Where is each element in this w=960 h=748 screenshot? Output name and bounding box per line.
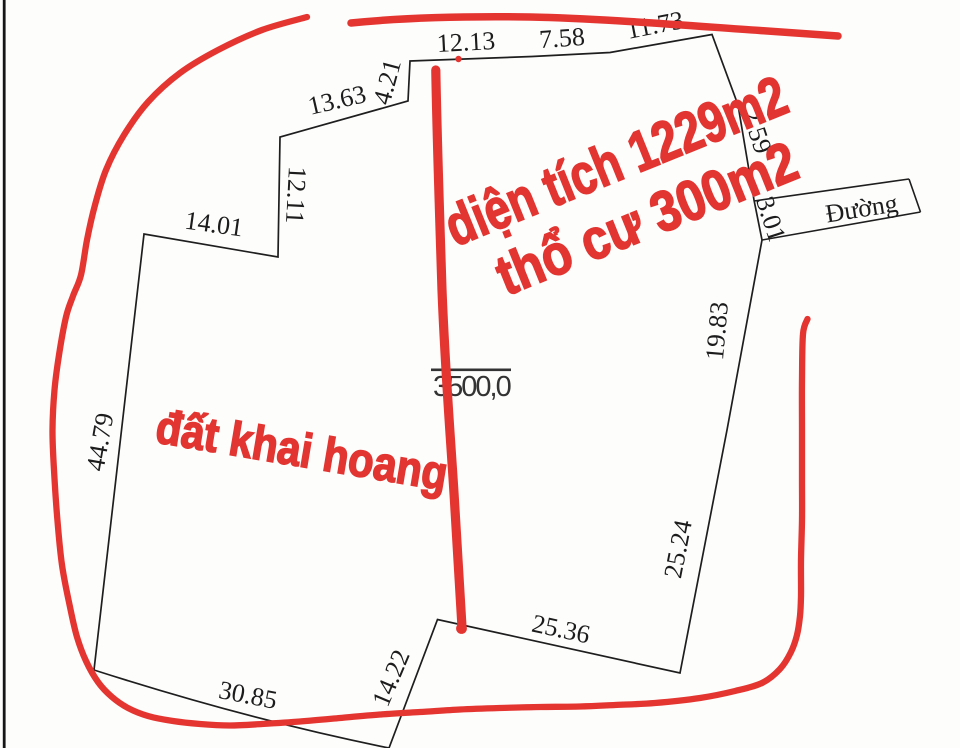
svg-text:4.21: 4.21 — [367, 56, 407, 107]
svg-text:25.24: 25.24 — [658, 518, 698, 581]
svg-text:12.11: 12.11 — [280, 166, 312, 225]
svg-text:14.01: 14.01 — [183, 206, 245, 243]
svg-text:14.22: 14.22 — [366, 645, 416, 710]
svg-text:25.36: 25.36 — [529, 609, 592, 650]
svg-text:44.79: 44.79 — [81, 411, 120, 474]
svg-text:19.83: 19.83 — [700, 301, 734, 362]
svg-text:Đường: Đường — [823, 188, 899, 228]
svg-text:12.13: 12.13 — [436, 26, 496, 58]
svg-text:7.58: 7.58 — [538, 22, 585, 54]
svg-text:đất khai hoang: đất khai hoang — [152, 399, 451, 501]
